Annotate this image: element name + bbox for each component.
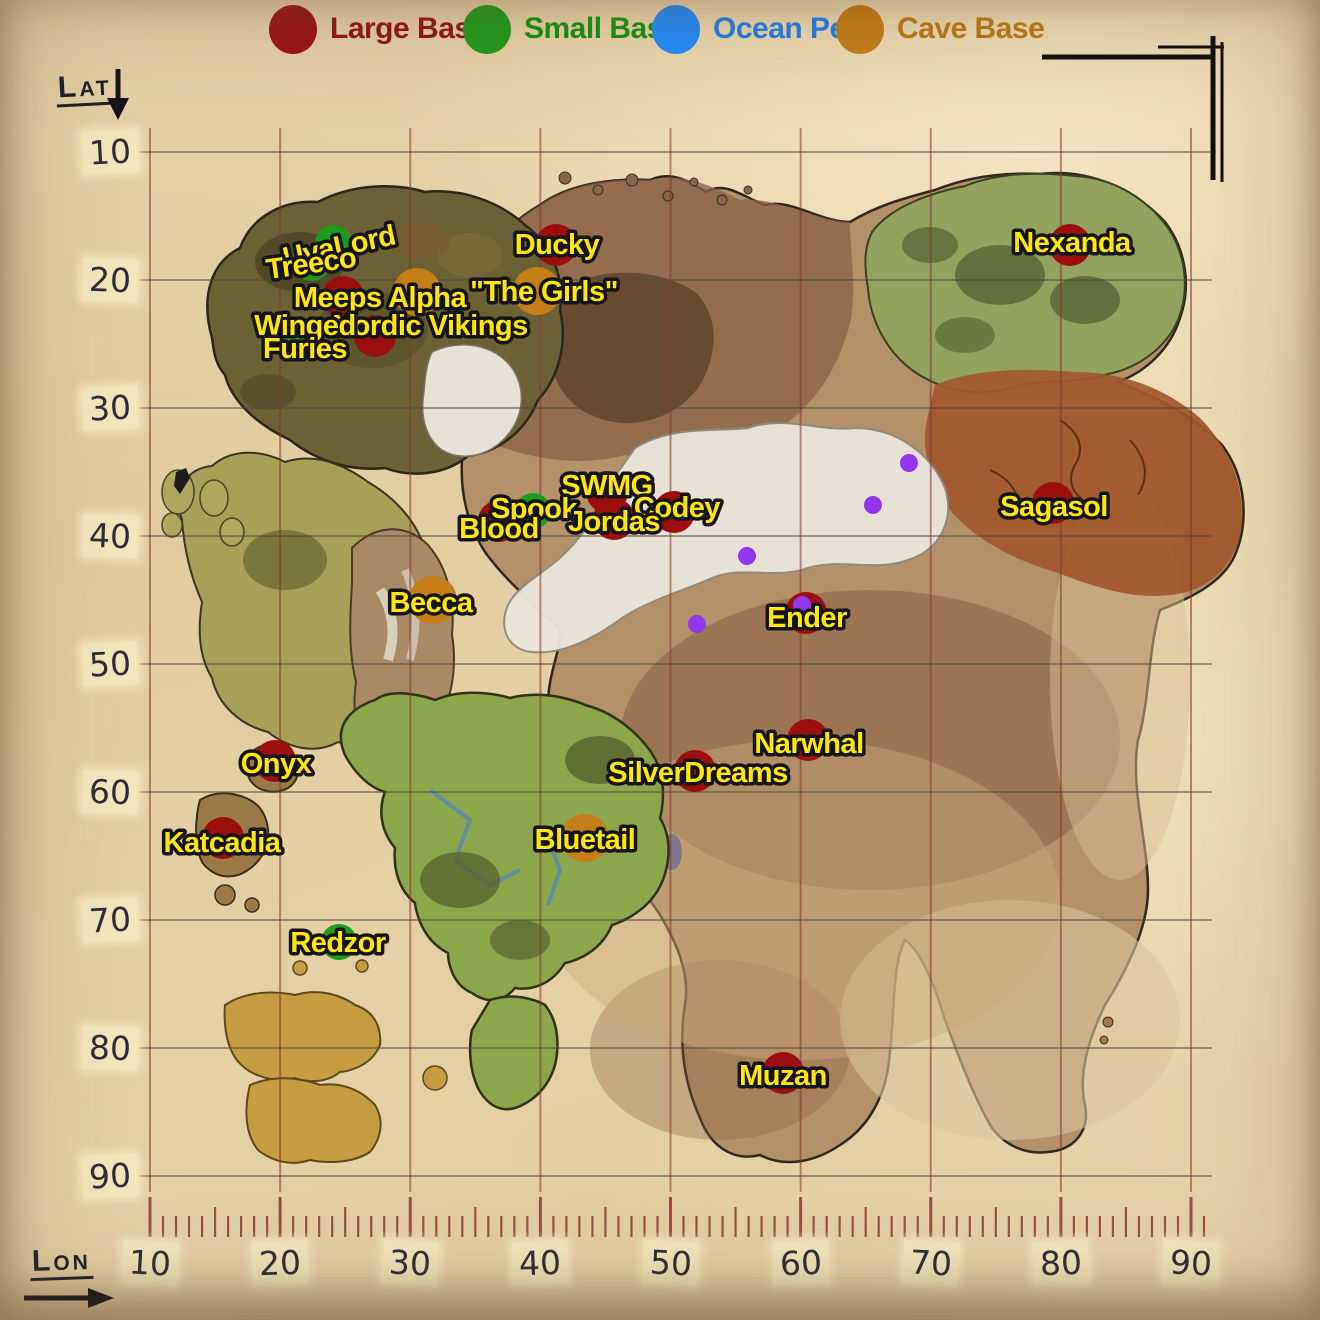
base-markers-layer: UvaLordTreecoDuckyMeeps Alpha"The Girls"… (0, 0, 1320, 1320)
base-label: Furies (263, 333, 347, 365)
lon-tick-label: 70 (902, 1240, 960, 1286)
legend-item-cave-base: Cave Base (836, 4, 1044, 54)
lat-tick-label: 90 (81, 1153, 139, 1199)
lon-tick-label: 60 (772, 1241, 829, 1286)
lon-tick-label: 90 (1162, 1240, 1220, 1286)
cave-base-dot-icon (836, 5, 884, 54)
lat-tick-label: 20 (81, 258, 138, 303)
base-label: Ducky (515, 229, 600, 261)
base-label: Ender (767, 602, 847, 634)
purple-dot-marker[interactable] (864, 496, 882, 514)
lat-tick-label: 10 (81, 129, 139, 175)
map-canvas: UvaLordTreecoDuckyMeeps Alpha"The Girls"… (0, 0, 1320, 1320)
large-base-dot-icon (269, 5, 317, 54)
lon-tick-label: 50 (641, 1240, 699, 1286)
base-label: Narwhal (754, 728, 863, 760)
legend-label: Cave Base (897, 12, 1044, 46)
base-label: Sagasol (1000, 491, 1108, 523)
purple-dot-marker[interactable] (688, 615, 706, 633)
purple-dot-marker[interactable] (738, 547, 756, 565)
lat-tick-label: 40 (81, 514, 138, 559)
lon-axis-title: Lon (29, 1245, 93, 1281)
base-label: "The Girls" (470, 276, 618, 308)
base-label: Redzor (290, 927, 386, 959)
legend-item-ocean-pen: Ocean Pen (652, 4, 864, 54)
lon-right-arrow-icon (22, 1286, 122, 1310)
lon-tick-label: 20 (251, 1241, 308, 1286)
lon-tick-label: 10 (121, 1240, 179, 1286)
lat-tick-label: 80 (81, 1026, 138, 1071)
base-label: Nexanda (1013, 227, 1132, 259)
base-label: Jordas (568, 506, 660, 538)
base-label: Katcadia (164, 827, 282, 859)
lat-tick-label: 50 (81, 641, 139, 687)
base-label: Bluetail (535, 824, 636, 856)
base-label: Nordic Vikings (332, 310, 528, 342)
base-label: SilverDreams (608, 757, 787, 789)
purple-dot-marker[interactable] (900, 454, 918, 472)
lon-tick-label: 80 (1032, 1241, 1089, 1286)
small-base-dot-icon (463, 5, 511, 54)
lat-tick-label: 30 (81, 385, 139, 431)
lon-tick-label: 40 (512, 1241, 569, 1286)
ocean-pen-dot-icon (652, 5, 700, 54)
legend-item-small-base: Small Base (463, 4, 679, 54)
lat-down-arrow-icon (104, 66, 134, 124)
base-label: Muzan (739, 1060, 827, 1092)
base-label: Becca (390, 587, 474, 619)
lon-tick-label: 30 (381, 1240, 439, 1286)
lat-tick-label: 70 (81, 897, 139, 943)
base-label: Blood (459, 513, 539, 545)
base-label: Onyx (241, 748, 312, 780)
lat-tick-label: 60 (81, 770, 138, 815)
legend-item-large-base: Large Base (269, 4, 487, 54)
